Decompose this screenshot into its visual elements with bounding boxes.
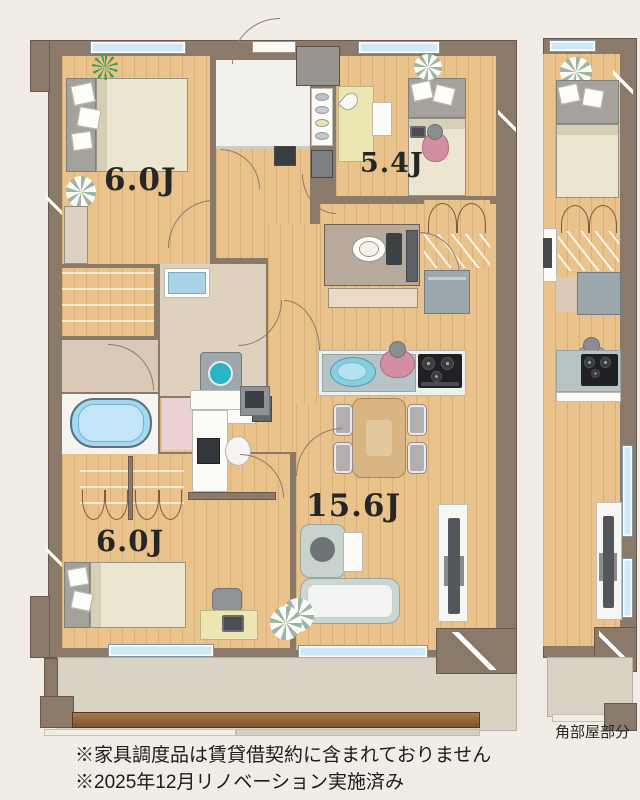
toilet-counter <box>328 288 418 308</box>
toilet-cabinet <box>406 230 418 282</box>
window <box>298 645 428 658</box>
closet-divider-wall <box>128 456 133 520</box>
shoe-icon <box>315 106 329 114</box>
closet-hanger-icon <box>135 490 182 520</box>
plant-icon <box>414 54 442 80</box>
monitor-icon <box>197 438 220 464</box>
kitchen-sink-inner <box>337 362 367 381</box>
vanity-sink-basin <box>168 272 206 294</box>
refrigerator-handle <box>428 277 466 280</box>
stove-burner <box>600 357 611 368</box>
front-door-swing-arc <box>232 18 280 64</box>
shoe-icon <box>315 119 329 127</box>
dining-chair <box>407 442 427 474</box>
pillow-icon <box>71 131 93 152</box>
side-window <box>622 558 633 618</box>
person-head <box>389 341 406 358</box>
washing-machine-drum <box>208 361 233 386</box>
side-table <box>343 532 363 572</box>
balcony-edge <box>236 729 480 736</box>
counter-end <box>556 392 621 402</box>
closet-hatch <box>558 231 619 271</box>
counter-sliver <box>556 277 577 312</box>
stove-burner <box>591 369 600 378</box>
toilet-tank <box>386 233 402 265</box>
balcony-corner-block <box>40 696 74 728</box>
window <box>358 41 440 54</box>
bed-icon <box>96 78 188 172</box>
printer-icon <box>245 391 264 408</box>
armchair-cushion <box>310 537 335 562</box>
window <box>90 41 186 54</box>
wall-stub-bottom-left <box>30 596 50 658</box>
printer-icon <box>372 102 392 136</box>
stove-burner <box>431 371 442 382</box>
person-cooking <box>380 341 414 377</box>
room-size-label: 5.4J <box>360 148 456 179</box>
side-window <box>622 445 633 537</box>
balcony-edge <box>44 729 236 736</box>
wall-hatch-mark <box>46 186 62 222</box>
bathtub-inner <box>78 404 144 442</box>
toilet-seat-inner <box>359 241 379 257</box>
wall-hatch-mark <box>498 100 516 140</box>
closet-northwest-hatch <box>62 268 154 336</box>
stove-control-strip <box>421 382 459 386</box>
note-line-2: ※2025年12月リノベーション実施済み <box>75 769 615 796</box>
balcony-railing <box>72 712 480 728</box>
tv-icon <box>448 518 460 614</box>
floorplan-image: 6.0J 15.6J <box>0 0 640 800</box>
pillow-icon <box>67 566 90 587</box>
room-size-label: 6.0J <box>96 524 212 558</box>
window <box>108 644 214 657</box>
entrance-porch <box>296 46 340 86</box>
desk-chair <box>212 588 242 612</box>
stove-burner <box>441 357 454 370</box>
person-head <box>427 124 443 140</box>
closet-hanger-icon <box>428 203 486 233</box>
disclaimer-notes: ※家具調度品は賃貸借契約に含まれておりません ※2025年12月リノベーション実… <box>75 742 615 796</box>
shoe-icon <box>315 132 329 140</box>
shoe-icon <box>315 93 329 101</box>
table-runner <box>366 420 392 456</box>
note-line-1: ※家具調度品は賃貸借契約に含まれておりません <box>75 742 615 769</box>
closet-hanger-icon <box>561 205 617 233</box>
bed-icon <box>90 562 186 628</box>
corner-hatch-mark <box>452 632 500 670</box>
bed-icon <box>556 124 619 198</box>
intercom-unit <box>274 146 296 166</box>
stove-burner <box>422 357 435 370</box>
tv-icon <box>603 516 614 608</box>
corner-room-strip <box>543 35 640 747</box>
plant-icon <box>270 606 302 640</box>
stove-burner <box>584 357 595 368</box>
closet-hanger-icon <box>82 490 128 520</box>
dining-chair <box>407 404 427 436</box>
corner-section-label: 角部屋部分 <box>545 721 640 742</box>
storage-cabinet <box>64 206 88 264</box>
wall-hatch-mark <box>46 538 62 574</box>
wall-stub-top-left <box>30 40 50 92</box>
laptop-icon <box>222 615 244 632</box>
room-size-label: 6.0J <box>104 162 220 198</box>
window <box>549 40 596 52</box>
pillow-icon <box>582 87 605 108</box>
pillow-icon <box>76 106 101 130</box>
plant-icon <box>92 54 118 80</box>
sofa-seat <box>307 584 393 618</box>
toilet-tank-sliver <box>543 238 552 268</box>
pillow-icon <box>70 590 93 612</box>
room-size-label: 15.6J <box>306 488 446 524</box>
plant-icon <box>66 176 96 208</box>
refrigerator-icon <box>577 272 621 315</box>
